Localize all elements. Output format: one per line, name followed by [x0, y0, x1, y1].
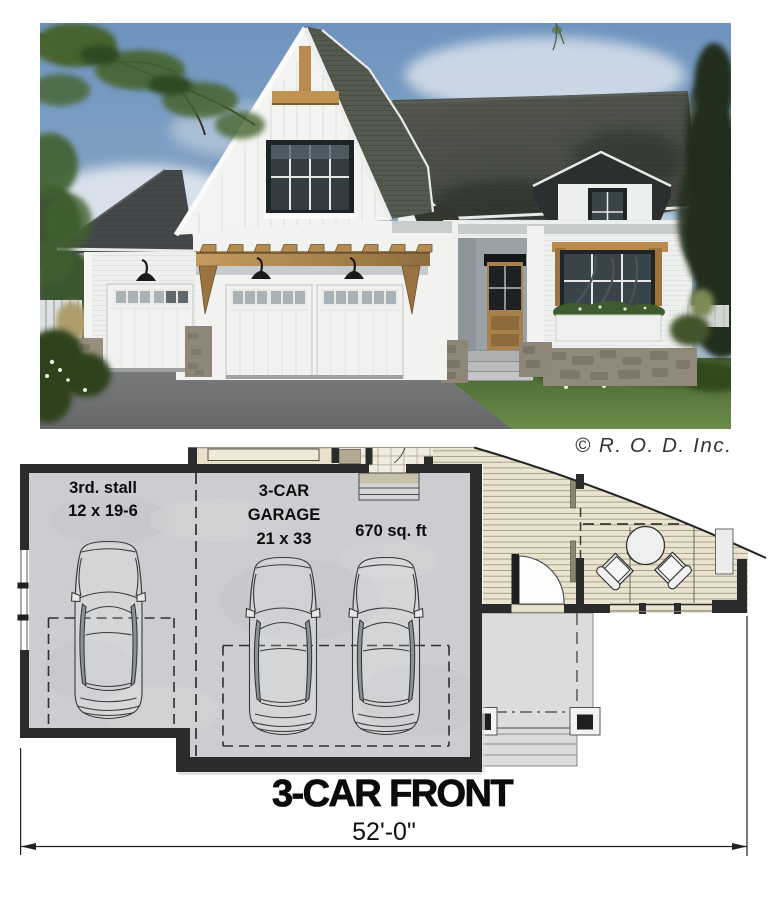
svg-text:3-CAR FRONT: 3-CAR FRONT	[272, 773, 513, 815]
svg-text:3rd. stall: 3rd. stall	[69, 479, 137, 497]
svg-text:52'-0": 52'-0"	[352, 818, 416, 846]
svg-text:670 sq. ft: 670 sq. ft	[355, 522, 427, 540]
svg-text:GARAGE: GARAGE	[248, 506, 320, 524]
svg-text:© R. O. D. Inc.: © R. O. D. Inc.	[575, 434, 733, 457]
svg-text:12 x 19-6: 12 x 19-6	[68, 502, 138, 520]
svg-text:3-CAR: 3-CAR	[259, 482, 310, 500]
svg-text:21 x 33: 21 x 33	[256, 530, 311, 548]
